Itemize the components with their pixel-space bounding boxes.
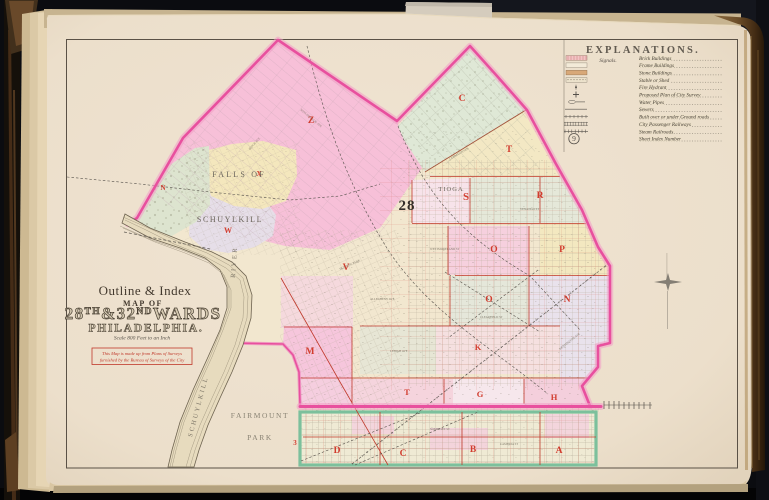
svg-text:SOMERSET ST: SOMERSET ST xyxy=(430,427,450,431)
svg-text:CLEARFIELD ST: CLEARFIELD ST xyxy=(480,315,503,319)
svg-text:O: O xyxy=(490,245,497,255)
svg-text:Outline & Index: Outline & Index xyxy=(99,283,192,298)
svg-text:P: P xyxy=(559,245,565,255)
svg-text:B: B xyxy=(470,445,477,455)
svg-text:Steam Railroads: Steam Railroads xyxy=(639,129,673,135)
svg-text:D: D xyxy=(334,446,341,456)
svg-text:VENANGO ST: VENANGO ST xyxy=(520,207,539,211)
svg-text:ALLEGHENY AVE: ALLEGHENY AVE xyxy=(370,297,395,301)
svg-text:TIOGA: TIOGA xyxy=(438,186,463,193)
svg-text:C: C xyxy=(459,94,466,104)
svg-text:K: K xyxy=(475,342,482,352)
svg-text:28: 28 xyxy=(399,198,416,214)
svg-text:N: N xyxy=(160,184,165,192)
svg-text:Fire Hydrant: Fire Hydrant xyxy=(638,85,667,91)
svg-text:Stable or Shed: Stable or Shed xyxy=(639,78,670,84)
svg-text:LEHIGH AVE: LEHIGH AVE xyxy=(390,349,408,353)
svg-text:Sheet Index Number: Sheet Index Number xyxy=(639,137,682,143)
svg-text:M: M xyxy=(306,347,315,357)
svg-text:Water Pipes: Water Pipes xyxy=(639,100,664,106)
svg-text:3: 3 xyxy=(293,439,297,447)
svg-text:Built over or under Ground roa: Built over or under Ground roads xyxy=(639,115,709,121)
svg-text:W: W xyxy=(224,226,232,235)
svg-text:Scale 800 Feet to an Inch: Scale 800 Feet to an Inch xyxy=(114,336,171,342)
svg-text:City Passenger Railways: City Passenger Railways xyxy=(639,122,691,128)
svg-text:Signals.: Signals. xyxy=(599,58,617,64)
svg-text:Sewers: Sewers xyxy=(639,107,654,113)
svg-text:9: 9 xyxy=(572,134,576,143)
svg-text:SCHUYLKILL: SCHUYLKILL xyxy=(197,215,263,224)
svg-text:S: S xyxy=(463,191,469,203)
svg-text:A: A xyxy=(556,446,563,456)
svg-text:T: T xyxy=(506,145,513,155)
svg-text:R: R xyxy=(537,191,544,201)
svg-text:FAIRMOUNT: FAIRMOUNT xyxy=(231,411,289,420)
svg-text:Stone Buildings: Stone Buildings xyxy=(639,71,672,77)
svg-text:G: G xyxy=(477,389,484,399)
svg-text:T: T xyxy=(404,387,410,397)
svg-text:PARK: PARK xyxy=(247,433,273,442)
svg-text:Frame Buildings: Frame Buildings xyxy=(638,63,674,69)
svg-text:Brick Buildings: Brick Buildings xyxy=(639,56,671,62)
svg-text:H: H xyxy=(551,392,558,402)
svg-text:PHILADELPHIA.: PHILADELPHIA. xyxy=(88,323,203,335)
svg-text:CAMBRIA ST: CAMBRIA ST xyxy=(500,442,518,446)
svg-text:EXPLANATIONS.: EXPLANATIONS. xyxy=(586,45,700,56)
svg-text:C: C xyxy=(400,449,407,459)
svg-text:FALLS OF: FALLS OF xyxy=(212,170,266,179)
svg-text:This Map is made up from Plans: This Map is made up from Plans of Survey… xyxy=(102,351,182,356)
svg-text:N: N xyxy=(564,295,571,305)
svg-text:O: O xyxy=(485,295,492,305)
svg-text:furnished by the Bureau of Sur: furnished by the Bureau of Surveys of th… xyxy=(100,358,186,363)
svg-text:Proposed Plan of City Survey: Proposed Plan of City Survey xyxy=(638,92,701,99)
svg-text:WESTMORELAND ST: WESTMORELAND ST xyxy=(430,247,460,251)
